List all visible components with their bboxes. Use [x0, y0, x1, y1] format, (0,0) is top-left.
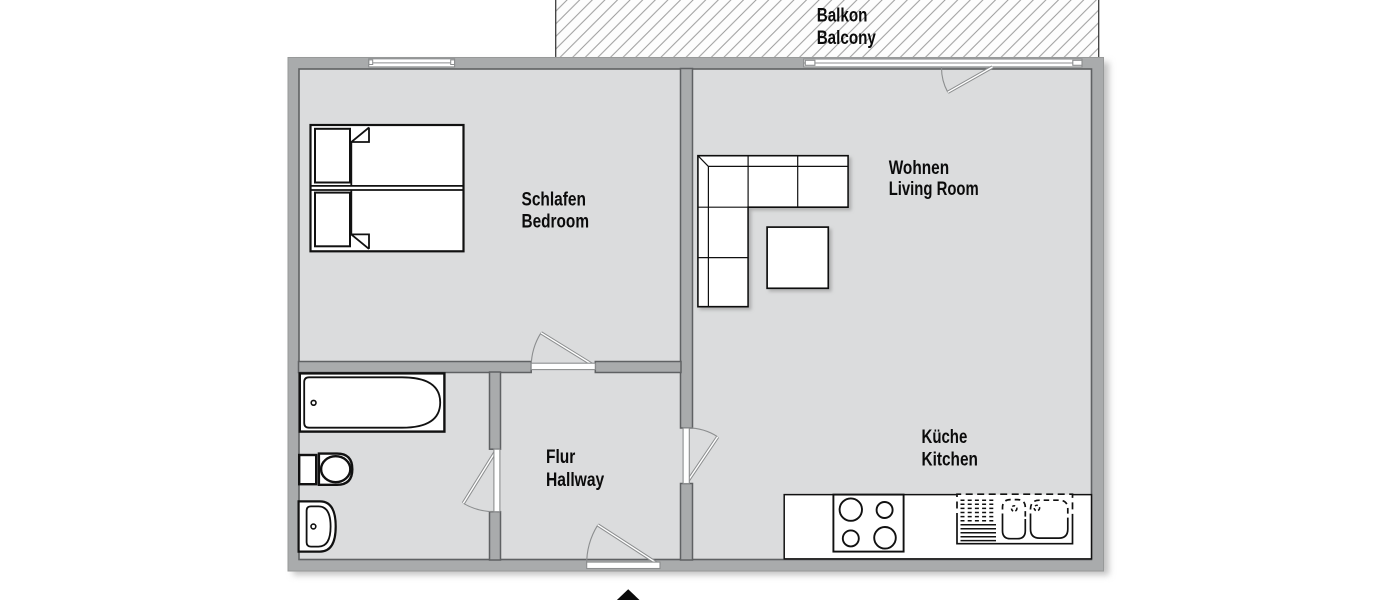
- svg-text:Küche: Küche: [922, 426, 968, 448]
- svg-text:Balkon: Balkon: [817, 4, 868, 26]
- svg-text:Hallway: Hallway: [546, 469, 604, 491]
- svg-text:Bedroom: Bedroom: [522, 211, 590, 233]
- svg-text:Wohnen: Wohnen: [889, 157, 949, 179]
- svg-text:Kitchen: Kitchen: [922, 448, 978, 470]
- svg-text:Balcony: Balcony: [817, 27, 876, 49]
- svg-text:Flur: Flur: [546, 446, 576, 468]
- svg-text:Schlafen: Schlafen: [522, 189, 587, 211]
- svg-text:Living Room: Living Room: [889, 178, 979, 200]
